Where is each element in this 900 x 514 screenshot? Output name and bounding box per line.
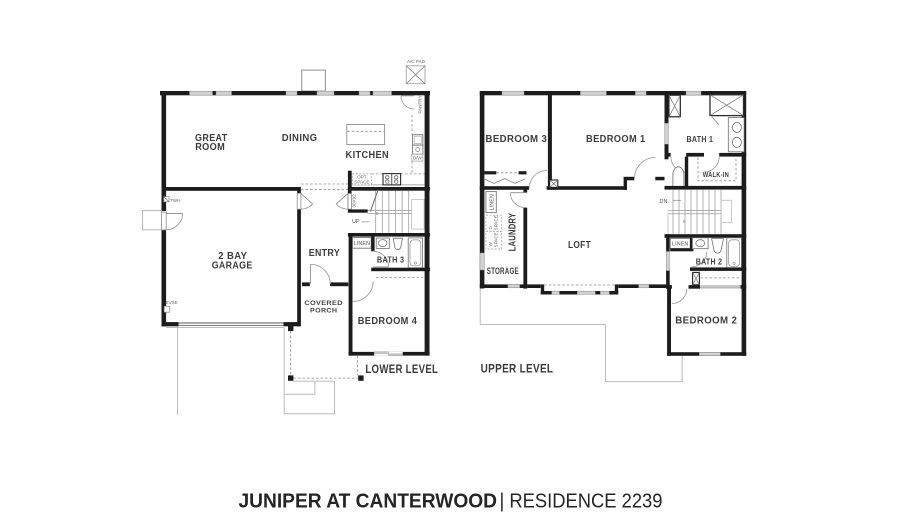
svg-text:PANTRY: PANTRY bbox=[418, 95, 423, 113]
svg-text:UPPER LEVEL: UPPER LEVEL bbox=[481, 362, 554, 376]
svg-text:LAUNDRY: LAUNDRY bbox=[507, 213, 519, 252]
svg-text:LOFT: LOFT bbox=[568, 240, 591, 251]
svg-text:LOWER LEVEL: LOWER LEVEL bbox=[365, 362, 438, 376]
svg-text:BEDROOM 3: BEDROOM 3 bbox=[486, 134, 548, 145]
svg-text:UP: UP bbox=[352, 219, 360, 225]
svg-text:STORAGE: STORAGE bbox=[487, 266, 519, 276]
svg-text:LINEN: LINEN bbox=[490, 194, 496, 210]
svg-text:D/W: D/W bbox=[413, 155, 423, 160]
svg-text:DINING: DINING bbox=[282, 133, 318, 144]
svg-text:| RESIDENCE 2239: | RESIDENCE 2239 bbox=[500, 491, 663, 513]
svg-text:DN: DN bbox=[660, 199, 668, 205]
svg-text:W: W bbox=[488, 242, 493, 247]
svg-text:LINEN: LINEN bbox=[672, 242, 688, 248]
svg-text:GARAGE: GARAGE bbox=[212, 260, 253, 271]
svg-text:ROOM: ROOM bbox=[195, 142, 225, 153]
svg-text:BEDROOM 4: BEDROOM 4 bbox=[358, 316, 418, 327]
svg-text:BEDROOM 1: BEDROOM 1 bbox=[586, 134, 646, 145]
svg-text:KITCHEN: KITCHEN bbox=[346, 150, 390, 161]
svg-text:BATH 1: BATH 1 bbox=[687, 135, 714, 144]
svg-text:SPACE: SPACE bbox=[494, 215, 499, 230]
svg-text:BEDROOM 2: BEDROOM 2 bbox=[675, 316, 737, 327]
svg-text:COVERED: COVERED bbox=[304, 300, 342, 307]
svg-text:SPACE: SPACE bbox=[354, 179, 369, 184]
svg-text:SPACE: SPACE bbox=[494, 232, 499, 247]
svg-text:WALK-IN: WALK-IN bbox=[703, 170, 729, 179]
svg-text:TWH: TWH bbox=[170, 198, 180, 203]
svg-text:PORCH: PORCH bbox=[310, 307, 337, 314]
svg-text:BATH 3: BATH 3 bbox=[377, 256, 405, 265]
svg-text:JUNIPER AT CANTERWOOD: JUNIPER AT CANTERWOOD bbox=[239, 491, 498, 513]
svg-text:EVSE: EVSE bbox=[166, 300, 178, 305]
svg-text:30X92: 30X92 bbox=[352, 194, 357, 208]
svg-text:ENTRY: ENTRY bbox=[309, 248, 340, 259]
svg-text:A/C PAD: A/C PAD bbox=[407, 59, 426, 64]
svg-text:BATH 2: BATH 2 bbox=[696, 257, 723, 266]
svg-text:LINEN: LINEN bbox=[354, 241, 370, 247]
